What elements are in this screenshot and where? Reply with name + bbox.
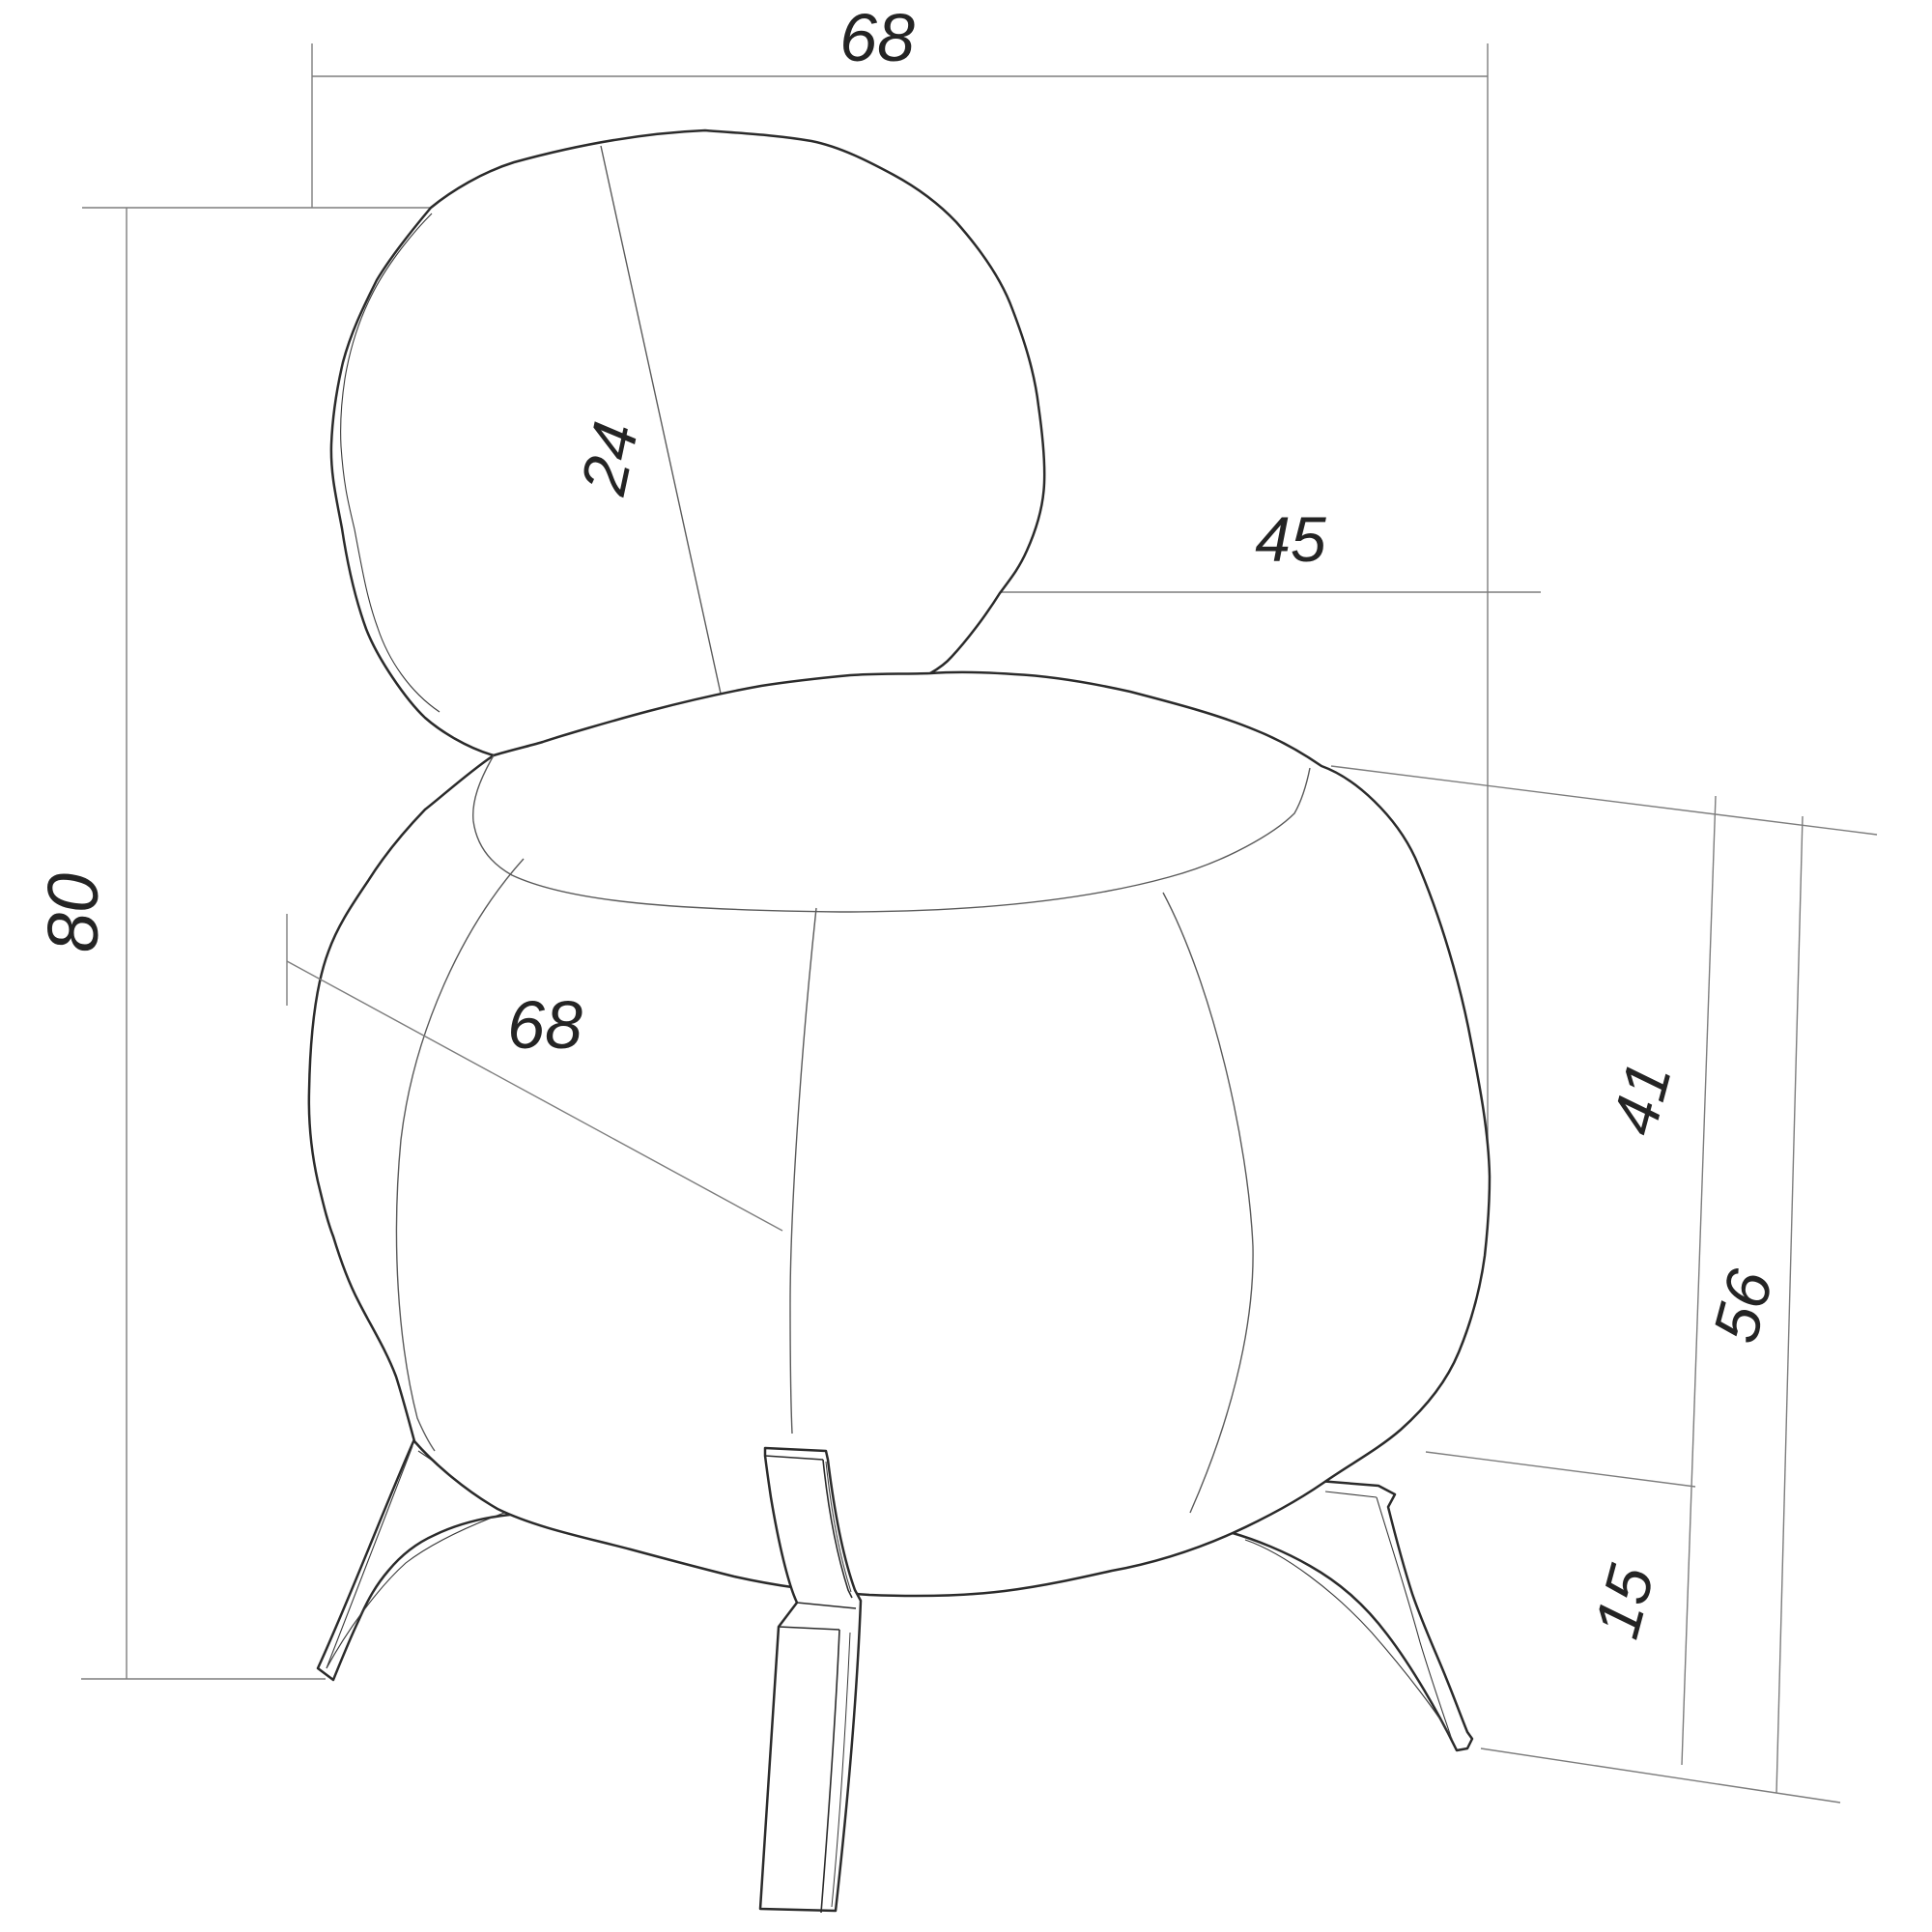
svg-text:80: 80 <box>33 873 113 952</box>
svg-text:45: 45 <box>1255 503 1326 575</box>
svg-text:68: 68 <box>839 0 915 75</box>
svg-text:24: 24 <box>566 416 651 501</box>
svg-text:68: 68 <box>507 987 582 1063</box>
